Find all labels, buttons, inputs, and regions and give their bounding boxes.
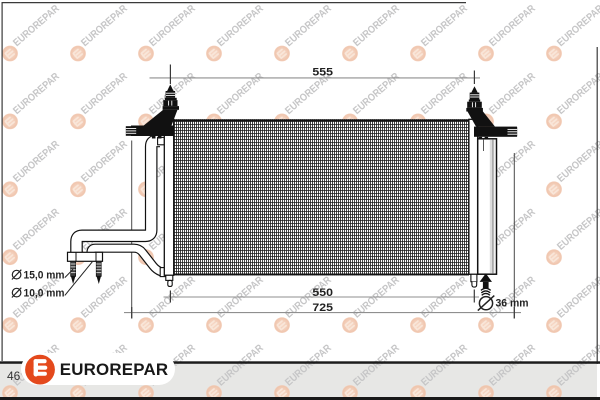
svg-text:EUROREPAR: EUROREPAR bbox=[60, 360, 168, 379]
